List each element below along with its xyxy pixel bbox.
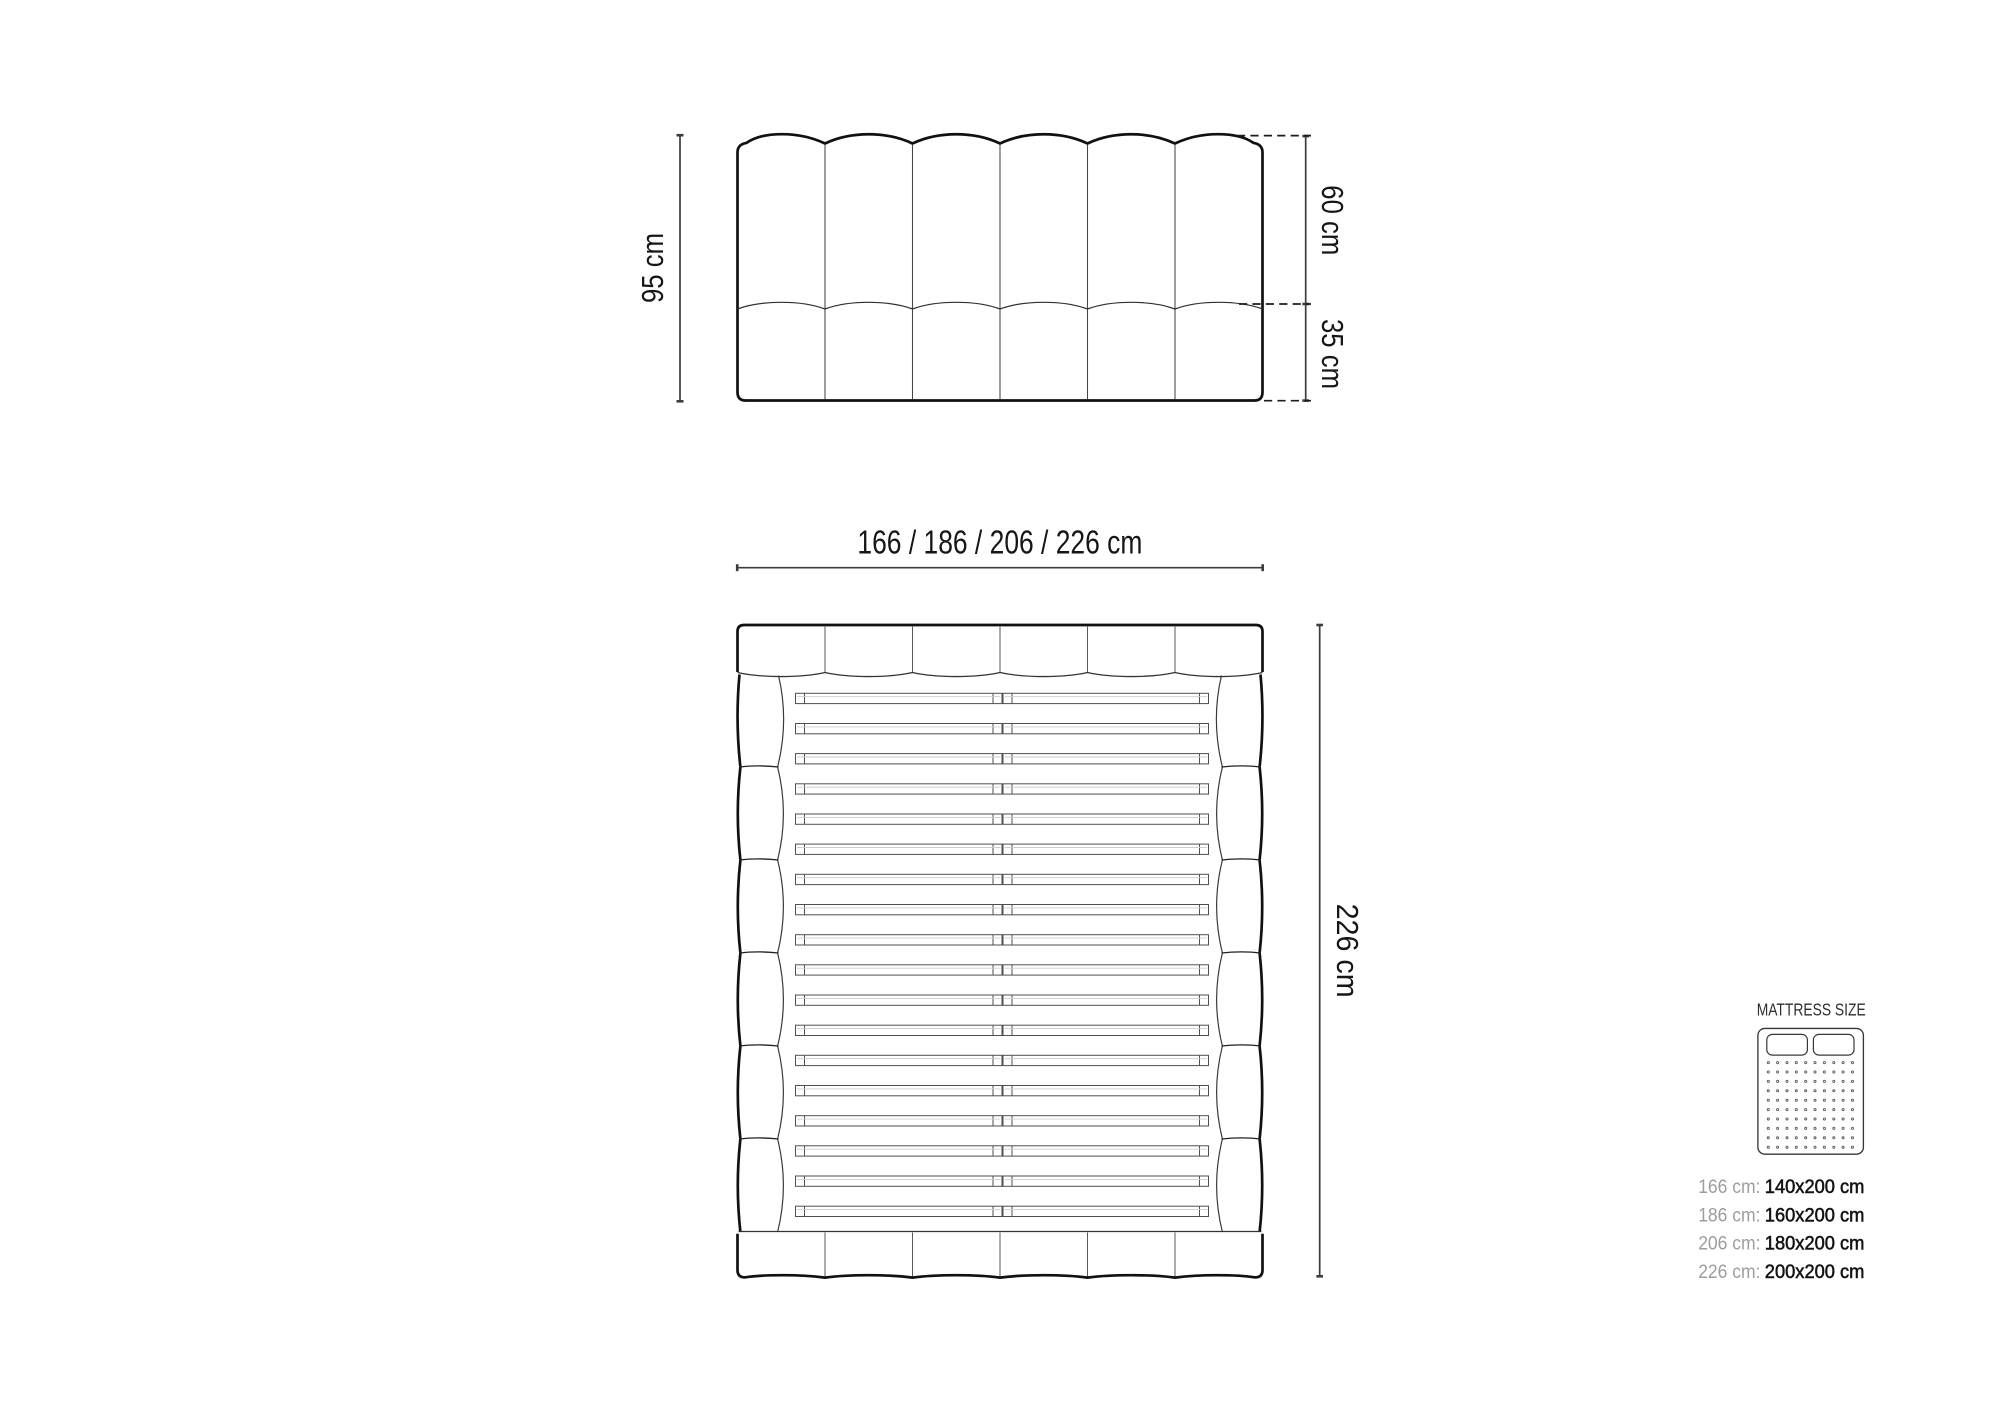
svg-text:186 cm:: 186 cm: — [1698, 1204, 1760, 1226]
svg-text:95 cm: 95 cm — [635, 233, 670, 303]
svg-text:60 cm: 60 cm — [1315, 185, 1350, 255]
svg-text:226 cm: 226 cm — [1330, 904, 1365, 998]
svg-text:206 cm:: 206 cm: — [1698, 1233, 1760, 1255]
svg-text:226 cm:: 226 cm: — [1698, 1261, 1760, 1283]
svg-text:200x200 cm: 200x200 cm — [1765, 1261, 1865, 1283]
svg-text:160x200 cm: 160x200 cm — [1765, 1204, 1865, 1226]
svg-text:166 cm:: 166 cm: — [1698, 1176, 1760, 1198]
svg-text:140x200 cm: 140x200 cm — [1765, 1176, 1865, 1198]
svg-text:35 cm: 35 cm — [1315, 319, 1350, 389]
svg-text:MATTRESS SIZE: MATTRESS SIZE — [1757, 999, 1866, 1019]
svg-text:166 / 186 / 206 / 226 cm: 166 / 186 / 206 / 226 cm — [857, 524, 1142, 561]
svg-text:180x200 cm: 180x200 cm — [1765, 1233, 1865, 1255]
